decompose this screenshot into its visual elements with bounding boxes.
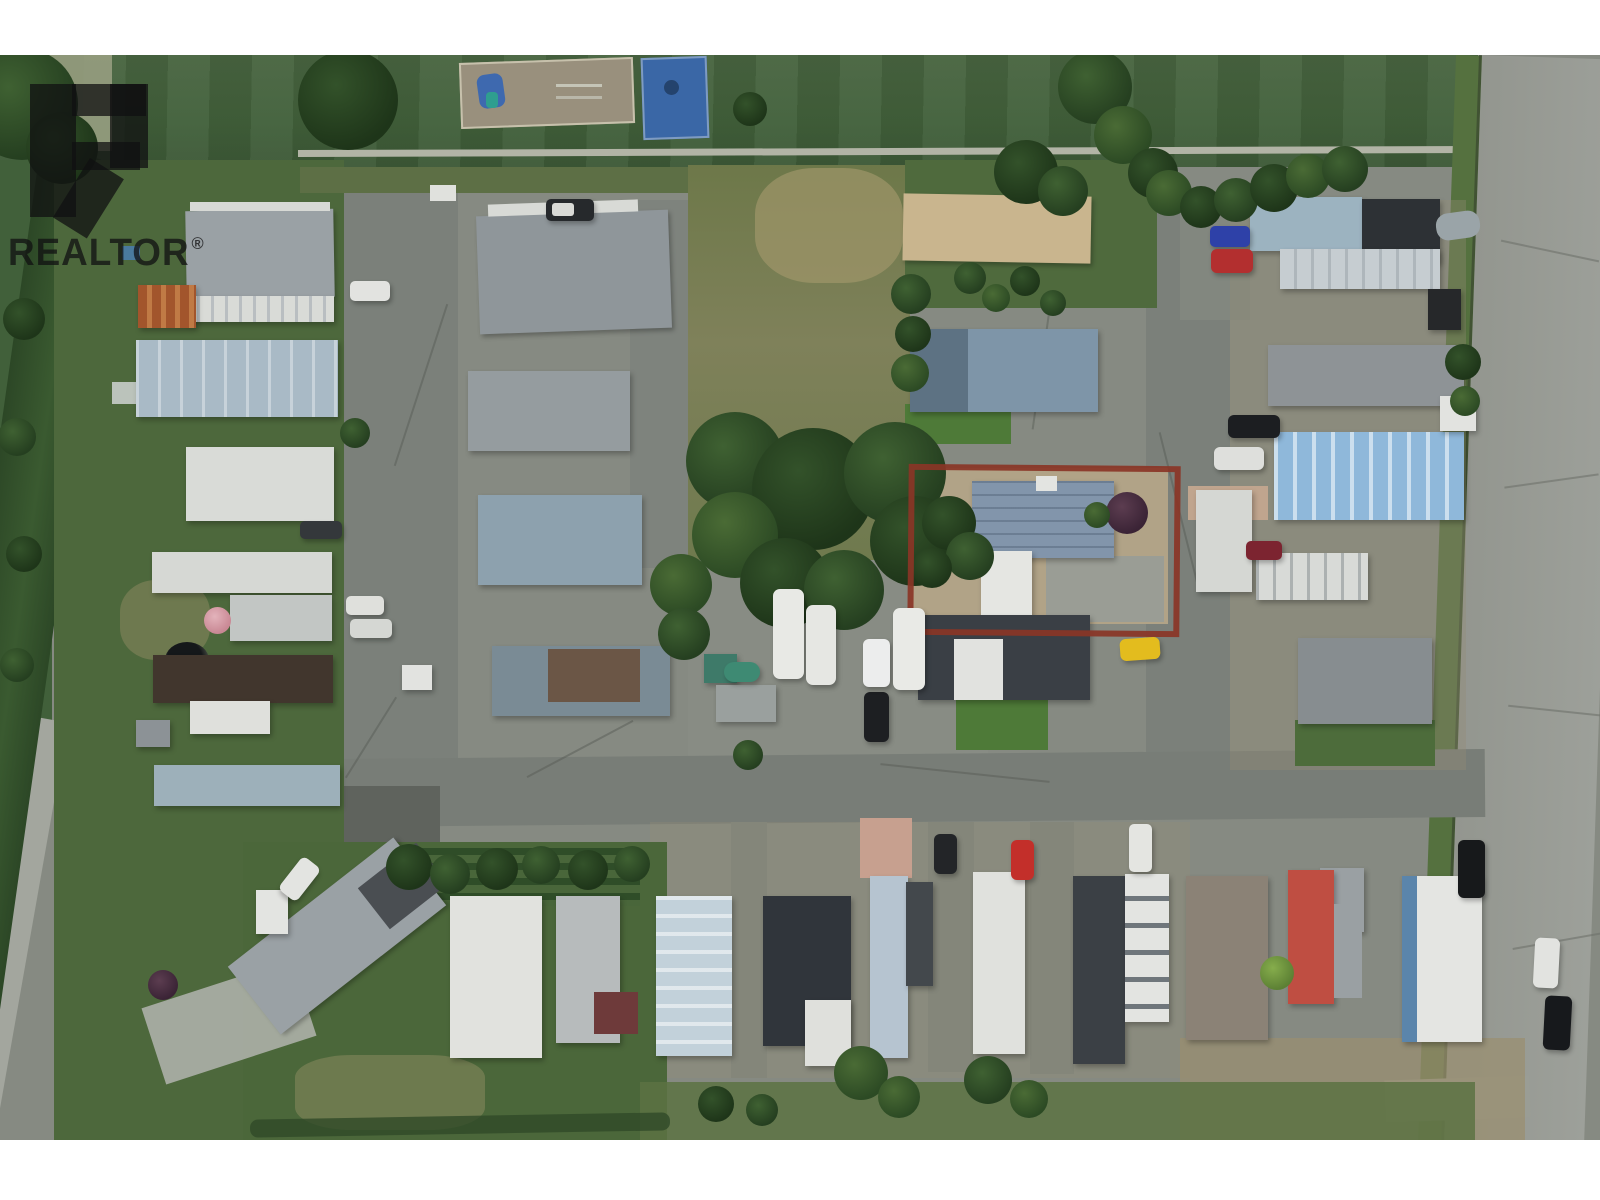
weed-bush-4 <box>1010 1080 1048 1118</box>
vacant-lot-dry-patch <box>755 168 903 283</box>
tree-11 <box>650 554 712 616</box>
bush-tan-1 <box>954 262 986 294</box>
bottom-band <box>0 1140 1600 1200</box>
home-r1-metal <box>1280 249 1440 289</box>
home-b5 <box>870 876 908 1058</box>
hedge-26 <box>1322 146 1368 192</box>
shed-gray-left <box>136 720 170 747</box>
carport-white <box>256 890 288 934</box>
goal-line-1 <box>556 84 602 87</box>
car-white-a <box>350 281 390 301</box>
car-dark-left <box>300 521 342 539</box>
orchard-tree-4 <box>0 648 34 682</box>
car-black-mid <box>864 692 889 742</box>
hedge-right-1 <box>1445 344 1481 380</box>
bush-shed <box>733 740 763 770</box>
canopy-white <box>402 665 432 690</box>
deck-red <box>594 992 638 1034</box>
bush-purple <box>148 970 178 1000</box>
trailer-white-top <box>430 185 456 201</box>
home-b9-red <box>1288 870 1334 1004</box>
car-white-l2 <box>350 619 392 638</box>
orchard-tree-3 <box>6 536 42 572</box>
tarp-blue <box>122 246 140 260</box>
home-a1-ridge <box>190 202 330 211</box>
weed-bush-3 <box>964 1056 1012 1104</box>
home-m3 <box>478 495 642 585</box>
home-b10-blue <box>1402 876 1417 1042</box>
rv-3 <box>893 608 925 690</box>
home-a1-roof <box>185 209 335 300</box>
goal-line-2 <box>556 96 602 99</box>
shed-black <box>1428 289 1461 330</box>
home-a5-ext <box>190 701 270 734</box>
shed-gray-mid <box>716 685 776 722</box>
lawn-below-dark-home <box>956 698 1048 750</box>
bush-tan-2 <box>982 284 1010 312</box>
rv-2 <box>806 605 836 685</box>
garden-bush-4 <box>522 846 560 884</box>
garden-bush-3 <box>476 848 518 890</box>
hedge-right-2 <box>1450 386 1480 416</box>
car-white-road <box>1533 937 1561 988</box>
aerial-photo-screenshot: REALTOR® <box>0 0 1600 1200</box>
home-a6 <box>154 765 340 806</box>
home-a2-ribs <box>136 340 338 417</box>
home-a5 <box>153 655 333 703</box>
car-blue <box>1210 226 1250 247</box>
court-equipment <box>664 80 679 95</box>
weed-bush-2 <box>878 1076 920 1118</box>
home-a3 <box>186 447 334 521</box>
aerial-photo <box>0 0 1600 1200</box>
left-street <box>336 190 458 776</box>
truck-white-b <box>1129 824 1152 872</box>
rv-1 <box>773 589 804 679</box>
garden-bush-6 <box>614 846 650 882</box>
car-black-road <box>1543 995 1573 1050</box>
home-b7-striped <box>1125 874 1169 1022</box>
home-b6 <box>973 872 1025 1054</box>
home-b5-dark <box>906 882 933 986</box>
car-darkred <box>1246 541 1282 560</box>
home-b9-gray <box>1334 904 1362 998</box>
weed-bush-6 <box>746 1094 778 1126</box>
van-roof-white <box>552 203 574 216</box>
home-m2 <box>468 371 630 451</box>
home-r4-ribs <box>1274 432 1464 520</box>
bush-lime <box>1260 956 1294 990</box>
bush-tan-3 <box>1010 266 1040 296</box>
orchard-tree-1 <box>3 298 45 340</box>
tree-19 <box>1038 166 1088 216</box>
home-a4 <box>152 552 332 593</box>
home-r2 <box>1268 345 1464 406</box>
shed-rust <box>138 285 196 328</box>
car-white-l1 <box>346 596 384 615</box>
trailer-small <box>863 639 890 687</box>
tree-1 <box>298 50 398 150</box>
home-b8 <box>1186 876 1268 1040</box>
top-strip-lawn <box>300 167 690 193</box>
tree-3 <box>26 112 98 184</box>
hedge-14 <box>895 316 931 352</box>
home-r5-ribs <box>1256 553 1368 600</box>
home-b7-dark <box>1073 876 1125 1064</box>
home-b3-ribs <box>656 896 732 1056</box>
car-yellow <box>1119 637 1160 662</box>
car-red <box>1211 249 1253 273</box>
weed-bush-5 <box>698 1086 734 1122</box>
suv-black-right <box>1228 415 1280 438</box>
home-m1 <box>476 210 672 335</box>
umbrella-pink <box>204 607 231 634</box>
tree-12 <box>658 608 710 660</box>
garden-bush-2 <box>430 854 470 894</box>
patio-pink <box>860 818 912 878</box>
bush-tan-4 <box>1040 290 1066 316</box>
hedge-13 <box>891 274 931 314</box>
home-a4-ext <box>230 595 332 641</box>
home-a1-skirt <box>186 296 334 322</box>
home-r3 <box>1196 490 1252 592</box>
home-b1 <box>450 896 542 1058</box>
car-red-b <box>1011 840 1034 880</box>
tree-field-circle <box>733 92 767 126</box>
tree-27 <box>340 418 370 448</box>
play-slide <box>486 92 498 108</box>
garden-bush-5 <box>568 850 608 890</box>
lawn-right-gray-home <box>1295 720 1435 766</box>
van-white-right <box>1214 447 1264 470</box>
top-band <box>0 0 1600 55</box>
home-below-prop-white <box>954 639 1003 700</box>
truck-black-br <box>1458 840 1485 898</box>
boat-teal <box>724 662 760 682</box>
garden-bush-1 <box>386 844 432 890</box>
sport-court <box>641 56 710 140</box>
car-black-b <box>934 834 957 874</box>
home-r6 <box>1298 638 1432 724</box>
home-m4-brown <box>548 649 640 702</box>
hedge-15 <box>891 354 929 392</box>
property-boundary-outline <box>907 464 1180 637</box>
